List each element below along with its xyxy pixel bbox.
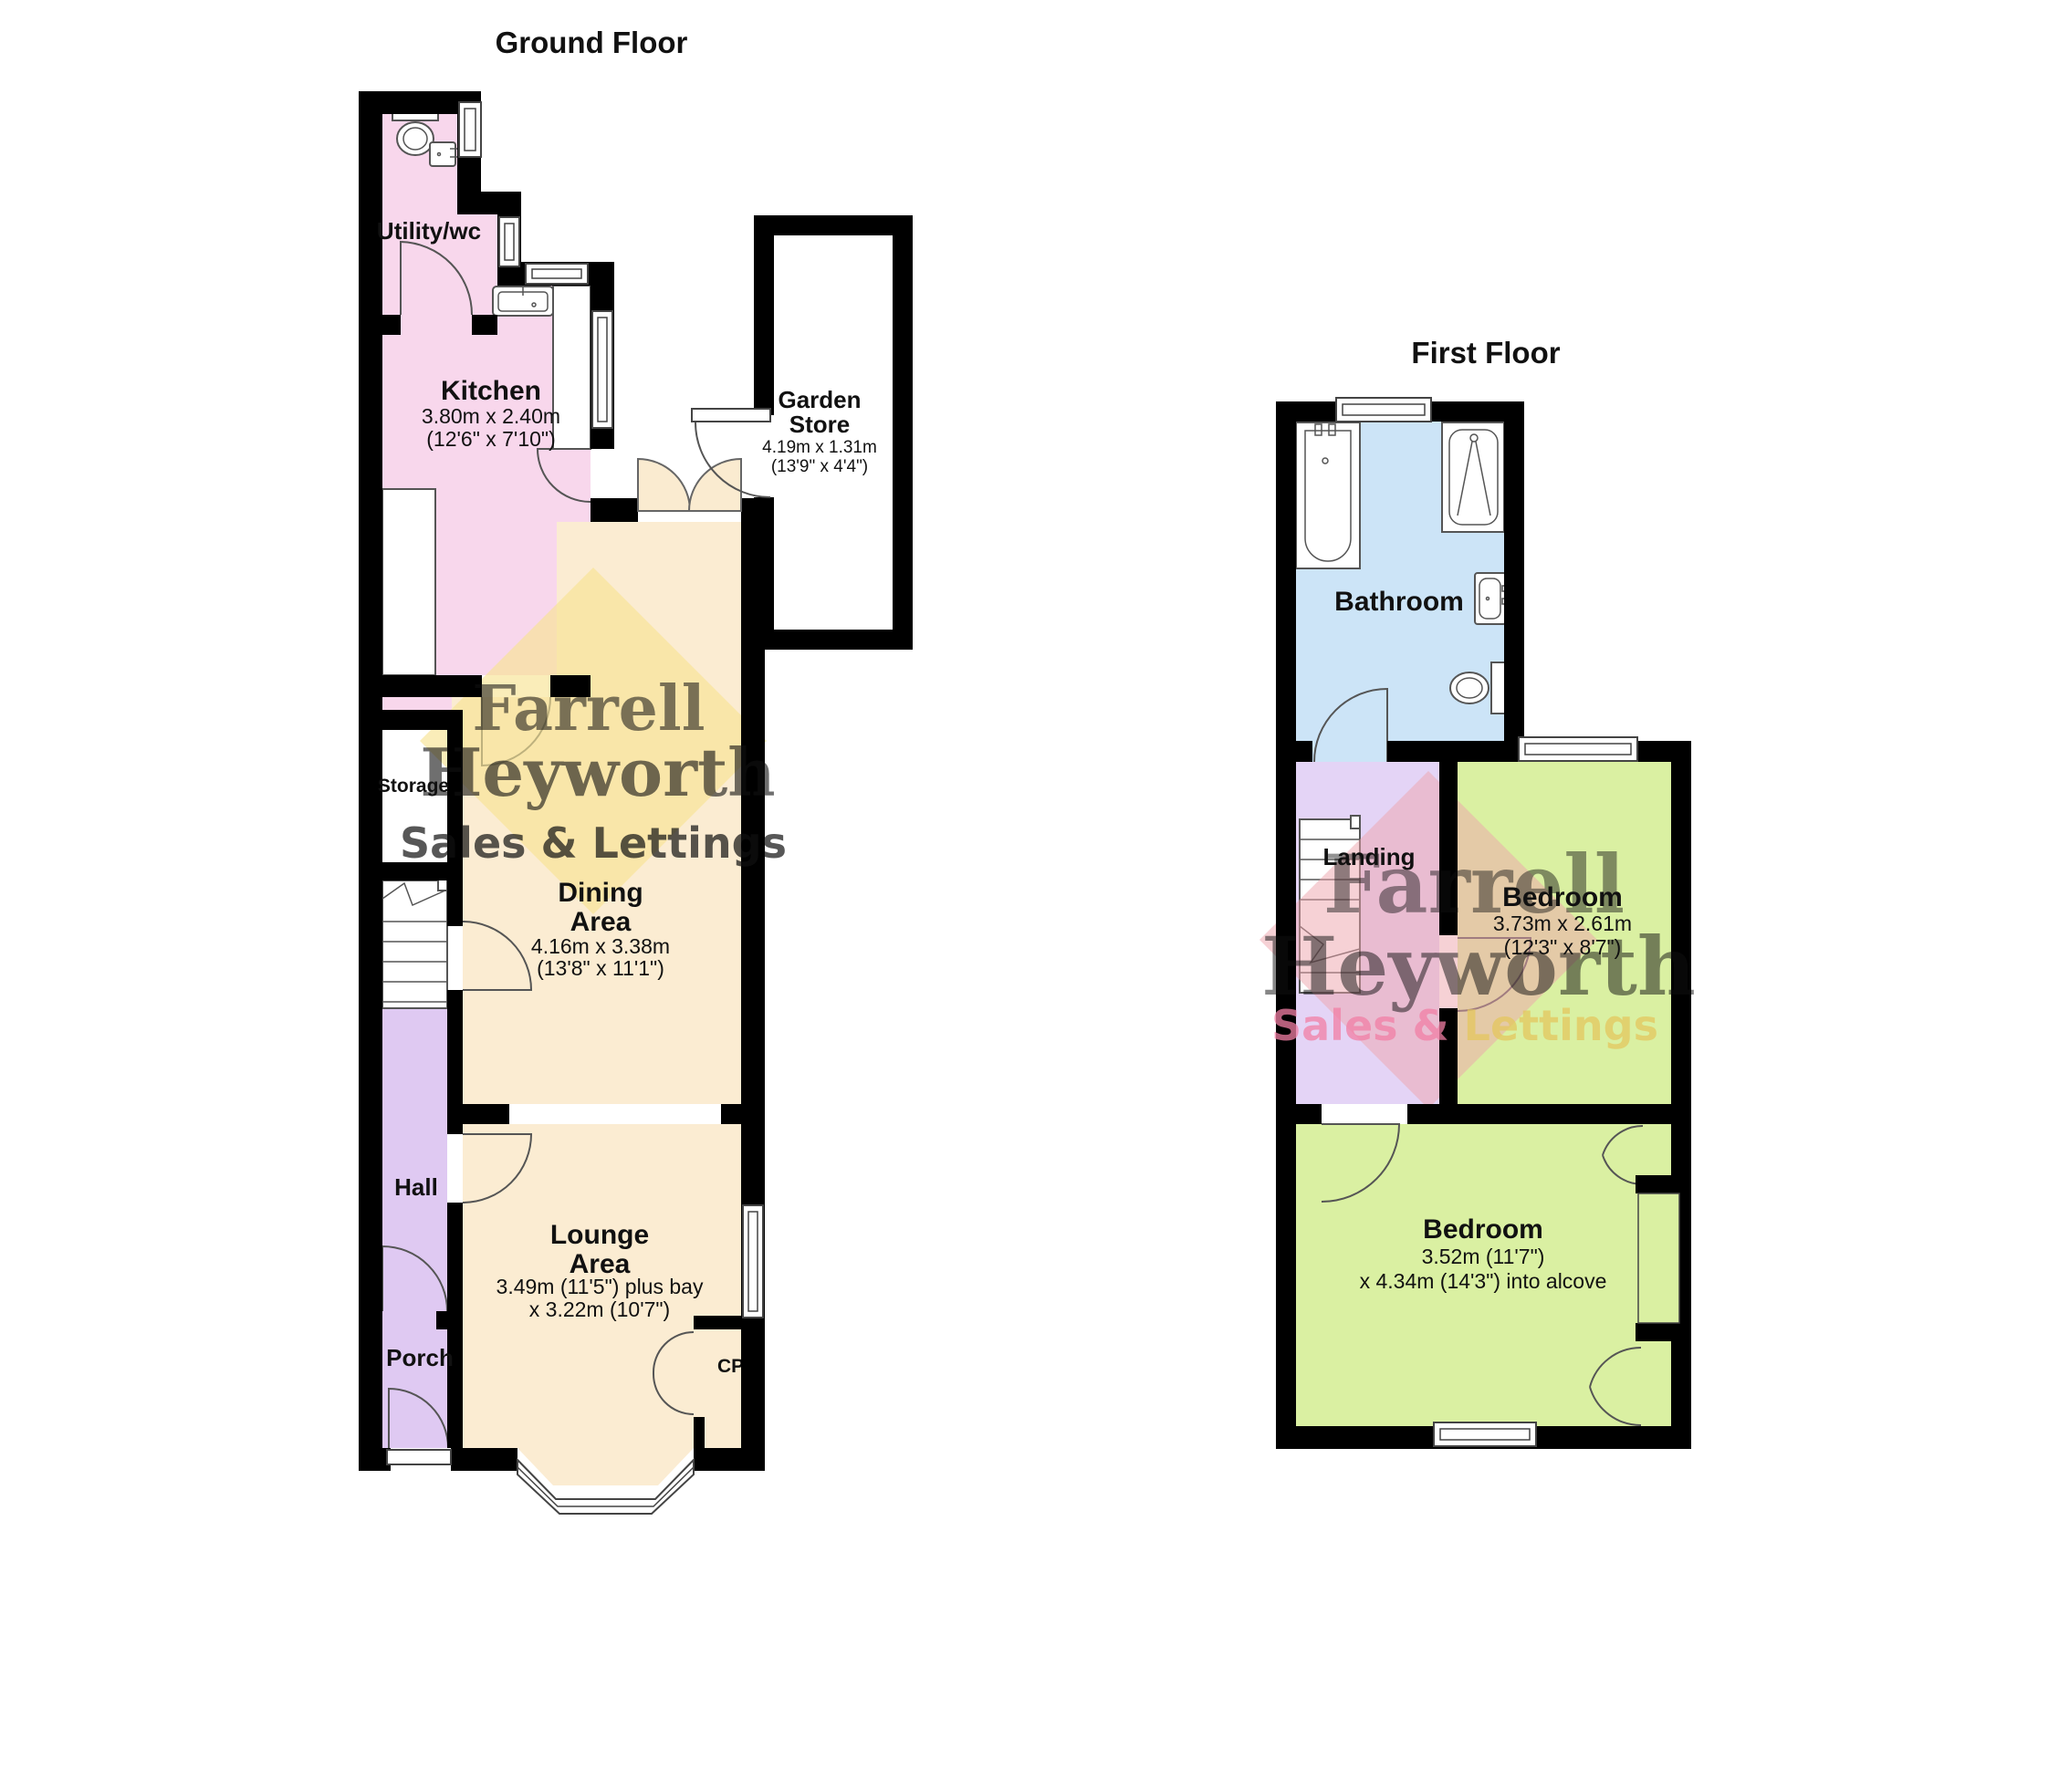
garden-store-label-2: Store: [789, 411, 850, 438]
wall-segment: [694, 1316, 741, 1329]
utility-sink-icon: [430, 142, 459, 166]
lounge-label-1: Lounge: [550, 1220, 649, 1250]
alcove-recess: [1638, 1193, 1679, 1323]
window: [592, 311, 612, 428]
wall-segment: [694, 1417, 705, 1448]
watermark-name-2: Heyworth: [420, 734, 775, 811]
wall-segment: [382, 675, 482, 697]
bath-icon: [1296, 422, 1360, 568]
wall-segment: [1504, 401, 1524, 762]
wall-segment: [1407, 1104, 1691, 1124]
wall-segment: [754, 215, 913, 235]
bedroom-2-dims-1: 3.52m (11'7"): [1422, 1245, 1545, 1268]
wall-segment: [463, 1104, 509, 1124]
wall-segment: [1276, 741, 1312, 762]
first-floor-title: First Floor: [1411, 336, 1560, 370]
watermark-tagline: Sales & Lettings: [400, 818, 787, 868]
window: [1434, 1422, 1536, 1446]
window: [743, 1205, 763, 1318]
wall-segment: [694, 1448, 765, 1471]
watermark-name-1: Farrell: [1323, 837, 1625, 932]
lounge-dims-1: 3.49m (11'5") plus bay: [496, 1275, 704, 1298]
wall-segment: [754, 497, 774, 650]
wall-segment: [457, 192, 521, 214]
garden-store-dims-m: 4.19m x 1.31m: [762, 438, 877, 457]
dining-dims-ft: (13'8" x 11'1"): [537, 956, 664, 980]
window: [499, 217, 519, 266]
first-floor-plan: First Floor: [1259, 336, 1696, 1449]
french-doors: [638, 459, 741, 511]
wall-segment: [447, 990, 463, 1134]
room-hall-porch: [382, 1008, 447, 1448]
watermark-tagline-part1: Sales &: [1271, 1001, 1449, 1050]
window: [459, 102, 481, 157]
wall-segment: [1636, 1175, 1673, 1193]
wall-segment: [472, 315, 497, 335]
wall-segment: [436, 1311, 463, 1329]
wall-segment: [754, 630, 913, 650]
dining-label-2: Area: [570, 907, 632, 937]
stairs-icon: [382, 878, 447, 1008]
watermark-tagline-part2: Lettings: [1449, 1001, 1658, 1050]
garden-store-label-1: Garden: [778, 386, 861, 413]
ground-floor-title: Ground Floor: [496, 26, 688, 59]
window: [526, 264, 588, 284]
dining-label-1: Dining: [558, 878, 643, 908]
wall-segment: [382, 315, 401, 335]
wall-segment: [1671, 741, 1691, 1449]
utility-label: Utility/wc: [377, 217, 481, 245]
watermark-name-2: Heyworth: [1261, 919, 1696, 1014]
window: [1336, 398, 1431, 422]
wall-segment: [591, 498, 638, 522]
wall-segment: [754, 215, 774, 415]
kitchen-sink-icon: [493, 283, 553, 316]
wall-segment: [721, 1104, 741, 1124]
bedroom-2-dims-2: x 4.34m (14'3") into alcove: [1360, 1269, 1607, 1293]
front-door-threshold: [387, 1450, 451, 1464]
window: [1519, 737, 1637, 761]
wall-segment: [451, 1448, 517, 1471]
wall-segment: [893, 215, 913, 650]
shower-icon: [1442, 422, 1504, 532]
bay-window-floor: [517, 1448, 694, 1485]
porch-label: Porch: [386, 1344, 454, 1371]
lounge-dims-2: x 3.22m (10'7"): [529, 1297, 670, 1321]
wall-segment: [359, 1448, 391, 1471]
kitchen-dims-ft: (12'6" x 7'10"): [426, 427, 555, 451]
wall-segment: [1636, 1323, 1673, 1341]
dining-dims-m: 4.16m x 3.38m: [531, 934, 670, 958]
hall-label: Hall: [394, 1173, 438, 1201]
kitchen-dims-m: 3.80m x 2.40m: [422, 404, 560, 428]
bathroom-label: Bathroom: [1334, 587, 1464, 617]
wall-segment: [1276, 1104, 1322, 1124]
kitchen-label: Kitchen: [441, 376, 541, 406]
watermark-tagline: Sales & Lettings: [1271, 1001, 1658, 1050]
garden-store-dims-ft: (13'9" x 4'4"): [771, 457, 868, 476]
bedroom-2-label: Bedroom: [1423, 1214, 1543, 1245]
ground-floor-plan: Ground Floor: [359, 26, 787, 1514]
